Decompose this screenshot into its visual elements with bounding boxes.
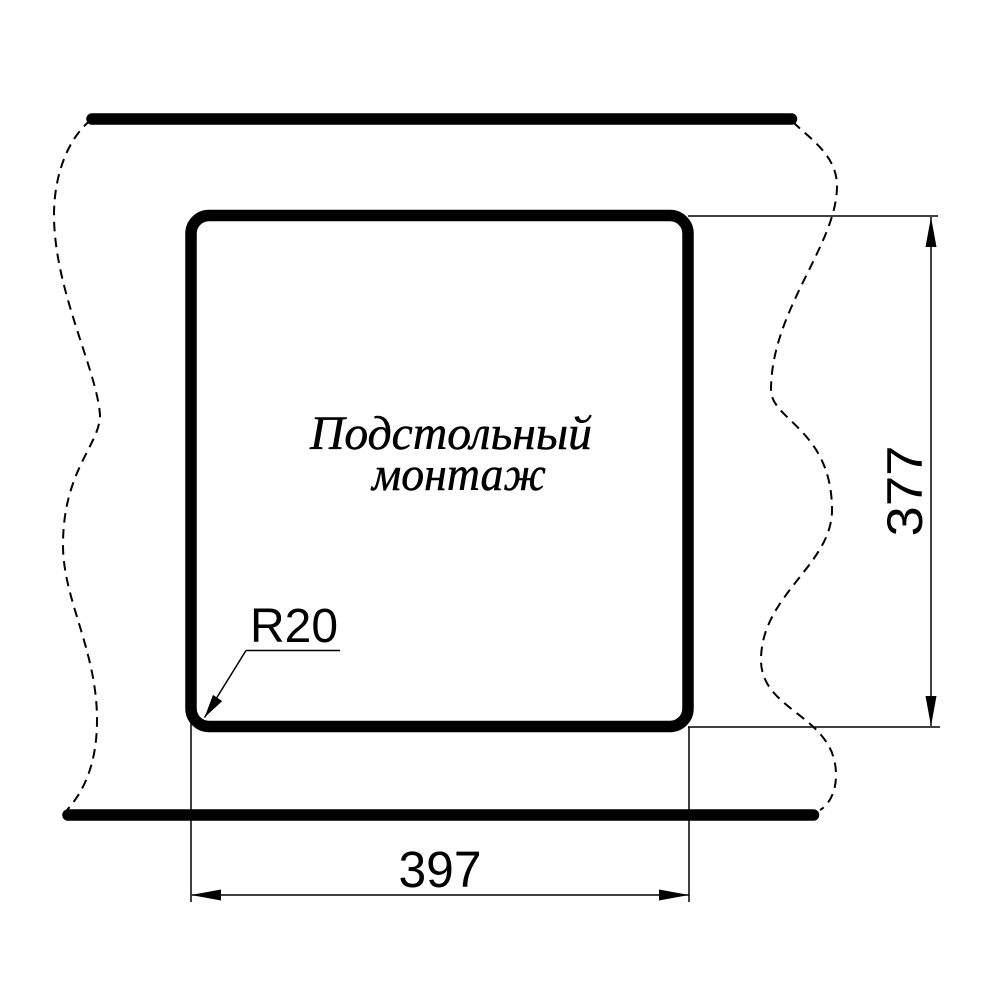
svg-text:R20: R20 bbox=[250, 600, 338, 653]
svg-text:монтаж: монтаж bbox=[370, 448, 546, 501]
svg-text:377: 377 bbox=[877, 446, 933, 537]
svg-text:397: 397 bbox=[399, 841, 482, 898]
